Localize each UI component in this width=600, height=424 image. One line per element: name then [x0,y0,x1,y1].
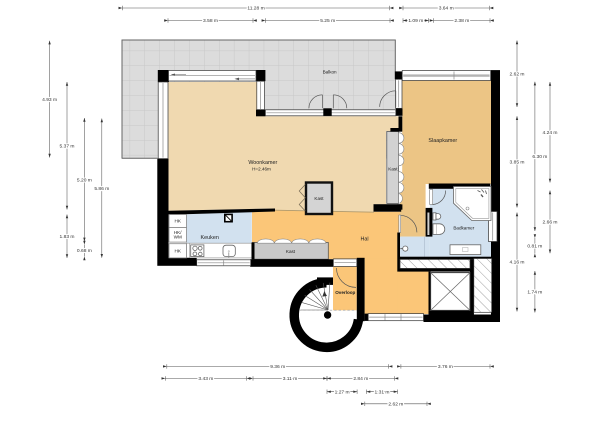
svg-text:3.76 m: 3.76 m [438,364,453,370]
svg-text:3.58 m: 3.58 m [203,18,218,24]
svg-text:Woonkamer: Woonkamer [248,160,277,166]
svg-text:3.85 m: 3.85 m [510,160,525,166]
svg-text:1.74 m: 1.74 m [527,289,542,295]
svg-text:11.28 m: 11.28 m [247,6,264,12]
svg-text:3.64 m: 3.64 m [439,6,454,12]
svg-text:2.62 m: 2.62 m [388,402,403,408]
svg-text:3.11 m: 3.11 m [283,376,298,382]
svg-text:4.93 m: 4.93 m [42,97,57,103]
svg-text:Kast: Kast [286,249,296,254]
svg-text:6.30 m: 6.30 m [532,154,547,160]
svg-text:5.20 m: 5.20 m [77,177,92,183]
svg-text:1.31 m: 1.31 m [375,389,390,395]
svg-text:4.24 m: 4.24 m [543,130,558,136]
svg-text:Balkon: Balkon [323,70,337,75]
svg-text:1.27 m: 1.27 m [335,389,350,395]
svg-text:3.43 m: 3.43 m [198,376,213,382]
svg-text:1.83 m: 1.83 m [60,234,75,240]
svg-text:2.62 m: 2.62 m [510,72,525,78]
svg-text:0.81 m: 0.81 m [527,243,542,249]
svg-text:Kast: Kast [314,196,324,201]
svg-text:Kast: Kast [388,166,398,171]
svg-text:Slaapkamer: Slaapkamer [428,138,457,144]
svg-text:2.84 m: 2.84 m [353,376,368,382]
svg-text:5.25 m: 5.25 m [320,18,335,24]
svg-text:WM: WM [174,235,182,240]
svg-text:2.38 m: 2.38 m [454,18,469,24]
svg-text:HK: HK [175,219,182,224]
svg-text:9.36 m: 9.36 m [270,364,285,370]
svg-text:4.16 m: 4.16 m [510,260,525,266]
svg-text:2.66 m: 2.66 m [543,220,558,226]
svg-text:5.37 m: 5.37 m [60,143,75,149]
svg-text:H=2.46m: H=2.46m [252,167,271,172]
svg-text:1.09 m: 1.09 m [408,18,423,24]
svg-text:0.68 m: 0.68 m [77,248,92,254]
svg-text:Keuken: Keuken [201,235,219,241]
svg-text:Overloop: Overloop [335,290,355,295]
svg-text:5.86 m: 5.86 m [94,186,109,192]
svg-text:Badkamer: Badkamer [453,225,474,230]
svg-text:HK: HK [175,248,182,253]
svg-text:Hal: Hal [360,237,368,243]
